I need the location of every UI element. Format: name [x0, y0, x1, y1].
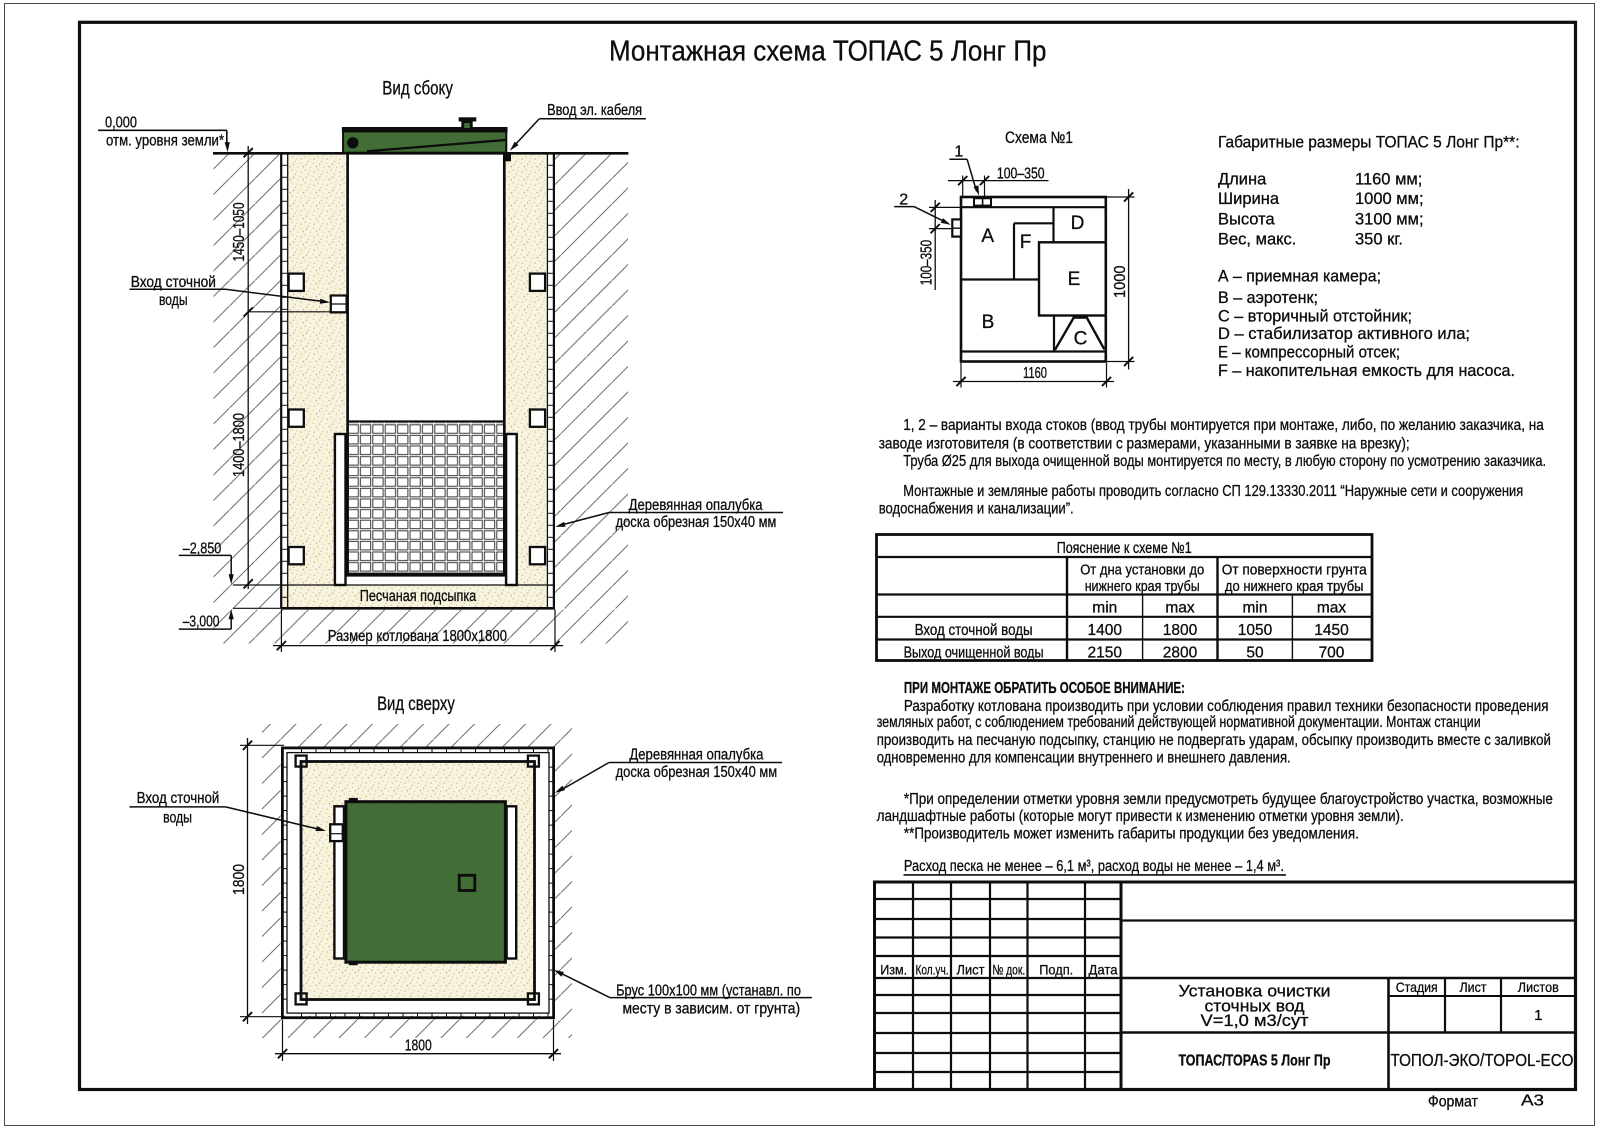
- svg-text:Разработку котлована производи: Разработку котлована производить при усл…: [904, 698, 1549, 715]
- svg-text:Вход сточной воды: Вход сточной воды: [915, 622, 1033, 639]
- svg-text:V=1,0 м3/сут: V=1,0 м3/сут: [1201, 1011, 1309, 1030]
- svg-text:С – вторичный отстойник;: С – вторичный отстойник;: [1218, 307, 1412, 325]
- svg-text:Габаритные размеры ТОПАС 5 Лон: Габаритные размеры ТОПАС 5 Лонг Пр**:: [1218, 134, 1520, 152]
- svg-text:ландшафтные работы (которые мо: ландшафтные работы (которые могут привес…: [877, 808, 1404, 825]
- svg-text:1000 мм;: 1000 мм;: [1355, 190, 1424, 208]
- svg-text:100–350: 100–350: [997, 165, 1045, 182]
- svg-text:C: C: [1074, 329, 1088, 350]
- svg-text:**Производитель может изменить: **Производитель может изменить габариты …: [904, 826, 1359, 843]
- svg-text:3100 мм;: 3100 мм;: [1355, 210, 1424, 228]
- svg-text:B: B: [982, 312, 995, 333]
- svg-text:A: A: [981, 226, 994, 247]
- svg-text:0,000: 0,000: [105, 114, 137, 131]
- svg-text:D: D: [1071, 213, 1085, 234]
- svg-text:земляных работ, с соблюдением: земляных работ, с соблюдением требований…: [877, 714, 1481, 731]
- svg-text:1: 1: [1534, 1007, 1542, 1024]
- svg-text:Высота: Высота: [1218, 210, 1275, 228]
- svg-text:ПРИ МОНТАЖЕ ОБРАТИТЬ ОСОБОЕ ВН: ПРИ МОНТАЖЕ ОБРАТИТЬ ОСОБОЕ ВНИМАНИЕ:: [904, 680, 1185, 697]
- svg-text:Размер котлована 1800х1800: Размер котлована 1800х1800: [328, 628, 508, 645]
- svg-text:1160 мм;: 1160 мм;: [1355, 171, 1422, 189]
- svg-text:водоснабжения и канализации”.: водоснабжения и канализации”.: [879, 501, 1074, 518]
- svg-text:Стадия: Стадия: [1396, 979, 1438, 995]
- svg-text:воды: воды: [159, 292, 188, 309]
- svg-text:Схема №1: Схема №1: [1005, 129, 1073, 147]
- svg-text:Кол.уч.: Кол.уч.: [916, 962, 949, 978]
- svg-text:Лист: Лист: [957, 962, 986, 978]
- svg-text:А3: А3: [1521, 1093, 1544, 1110]
- svg-text:*При определении отметки уровн: *При определении отметки уровня земли пр…: [904, 791, 1553, 808]
- svg-text:А – приемная камера;: А – приемная камера;: [1218, 268, 1381, 286]
- svg-text:Вес, макс.: Вес, макс.: [1218, 231, 1296, 249]
- svg-text:1400–1800: 1400–1800: [231, 413, 248, 477]
- svg-text:производить на песчаную подсып: производить на песчаную подсыпку, станци…: [877, 732, 1551, 749]
- svg-text:1050: 1050: [1238, 622, 1273, 639]
- svg-text:Деревянная опалубка: Деревянная опалубка: [629, 497, 763, 514]
- svg-text:От поверхности грунта: От поверхности грунта: [1222, 563, 1368, 579]
- svg-text:1000: 1000: [1112, 265, 1129, 298]
- svg-text:доска обрезная 150х40 мм: доска обрезная 150х40 мм: [616, 764, 778, 781]
- svg-text:1450: 1450: [1314, 622, 1349, 639]
- svg-text:700: 700: [1319, 644, 1345, 661]
- svg-text:1800: 1800: [405, 1037, 432, 1054]
- svg-text:min: min: [1243, 600, 1268, 617]
- svg-text:Вход сточной: Вход сточной: [137, 790, 220, 807]
- svg-text:Е – компрессорный отсек;: Е – компрессорный отсек;: [1218, 344, 1400, 362]
- svg-text:Ввод эл. кабеля: Ввод эл. кабеля: [547, 102, 642, 119]
- svg-text:F: F: [1020, 232, 1032, 253]
- svg-text:max: max: [1165, 600, 1195, 617]
- svg-text:Ширина: Ширина: [1218, 190, 1280, 208]
- svg-text:E: E: [1068, 269, 1081, 290]
- svg-text:2: 2: [899, 191, 908, 208]
- svg-text:2800: 2800: [1163, 644, 1198, 661]
- svg-text:100–350: 100–350: [918, 240, 935, 286]
- svg-text:одновременно для компенсации в: одновременно для компенсации внутреннего…: [877, 749, 1291, 766]
- svg-text:ТОПОЛ-ЭКО/TOPOL-ECO: ТОПОЛ-ЭКО/TOPOL-ECO: [1391, 1050, 1574, 1070]
- svg-text:заводе изготовителя (в соответ: заводе изготовителя (в соответствии с ра…: [879, 436, 1410, 453]
- svg-text:отм. уровня земли*: отм. уровня земли*: [106, 132, 224, 149]
- svg-text:D – стабилизатор активного ила: D – стабилизатор активного ила;: [1218, 325, 1470, 343]
- svg-text:1: 1: [954, 144, 963, 161]
- svg-text:–3,000: –3,000: [183, 614, 220, 631]
- svg-text:Длина: Длина: [1218, 171, 1267, 189]
- svg-text:Расход песка не менее – 6,1 м³: Расход песка не менее – 6,1 м³, расход в…: [904, 858, 1284, 875]
- svg-text:Формат: Формат: [1428, 1094, 1478, 1111]
- svg-text:Лист: Лист: [1460, 979, 1488, 995]
- svg-text:Труба Ø25 для выхода очищенной: Труба Ø25 для выхода очищенной воды монт…: [903, 453, 1546, 470]
- svg-text:до нижнего края трубы: до нижнего края трубы: [1225, 579, 1364, 595]
- svg-text:Изм.: Изм.: [880, 962, 907, 978]
- svg-text:2150: 2150: [1088, 644, 1123, 661]
- svg-text:От дна установки до: От дна установки до: [1080, 563, 1204, 579]
- svg-text:нижнего края трубы: нижнего края трубы: [1085, 579, 1200, 595]
- svg-text:350 кг.: 350 кг.: [1355, 231, 1403, 249]
- svg-text:Деревянная опалубка: Деревянная опалубка: [629, 747, 763, 764]
- svg-text:Вид сбоку: Вид сбоку: [382, 79, 453, 100]
- svg-text:1160: 1160: [1023, 365, 1047, 382]
- svg-text:ТОПАС/TOPAS 5 Лонг Пр: ТОПАС/TOPAS 5 Лонг Пр: [1179, 1053, 1331, 1070]
- svg-text:F – накопительная емкость для: F – накопительная емкость для насоса.: [1218, 362, 1515, 380]
- svg-text:№ док.: № док.: [992, 962, 1025, 978]
- svg-text:Песчаная подсыпка: Песчаная подсыпка: [360, 588, 477, 605]
- svg-text:1400: 1400: [1088, 622, 1123, 639]
- svg-text:Монтажные и земляные работы пр: Монтажные и земляные работы проводить со…: [903, 483, 1523, 500]
- svg-text:1, 2 – варианты входа стоков: 1, 2 – варианты входа стоков (ввод трубы…: [903, 417, 1544, 434]
- svg-text:Монтажная схема ТОПАС 5 Лонг П: Монтажная схема ТОПАС 5 Лонг Пр: [609, 36, 1047, 68]
- svg-text:1450–1050: 1450–1050: [231, 202, 248, 261]
- svg-text:1800: 1800: [231, 864, 248, 895]
- svg-text:Дата: Дата: [1089, 962, 1118, 978]
- svg-text:max: max: [1317, 600, 1347, 617]
- svg-text:доска обрезная 150х40 мм: доска обрезная 150х40 мм: [616, 514, 777, 531]
- svg-text:50: 50: [1246, 644, 1264, 661]
- svg-text:1800: 1800: [1163, 622, 1198, 639]
- svg-text:Вид сверху: Вид сверху: [377, 694, 455, 715]
- svg-text:Вход сточной: Вход сточной: [131, 274, 216, 291]
- svg-text:Выход очищенной воды: Выход очищенной воды: [904, 644, 1044, 661]
- svg-text:min: min: [1092, 600, 1117, 617]
- svg-text:Пояснение к схеме №1: Пояснение к схеме №1: [1057, 540, 1192, 557]
- svg-text:месту в зависим. от грунта): месту в зависим. от грунта): [623, 1001, 801, 1018]
- svg-text:Листов: Листов: [1518, 979, 1559, 995]
- svg-text:воды: воды: [163, 810, 192, 827]
- svg-text:Подп.: Подп.: [1039, 962, 1073, 978]
- svg-text:В – аэротенк;: В – аэротенк;: [1218, 289, 1318, 307]
